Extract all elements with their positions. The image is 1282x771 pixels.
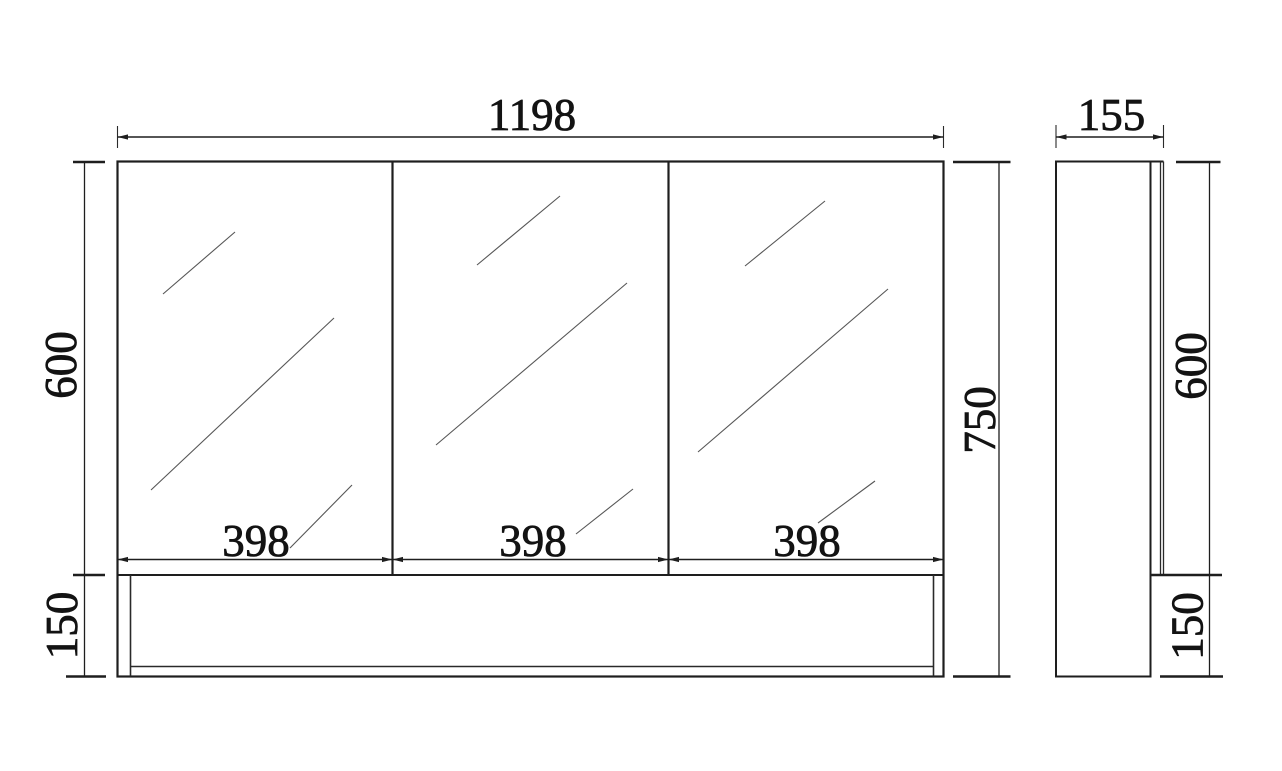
svg-text:150: 150: [37, 592, 87, 660]
svg-text:398: 398: [222, 516, 290, 566]
svg-text:1198: 1198: [488, 90, 576, 140]
svg-text:750: 750: [955, 386, 1005, 454]
svg-text:150: 150: [1163, 592, 1213, 660]
svg-text:600: 600: [36, 331, 86, 399]
svg-text:398: 398: [773, 516, 841, 566]
svg-text:600: 600: [1166, 332, 1216, 400]
svg-text:398: 398: [499, 516, 567, 566]
svg-text:155: 155: [1078, 90, 1146, 140]
